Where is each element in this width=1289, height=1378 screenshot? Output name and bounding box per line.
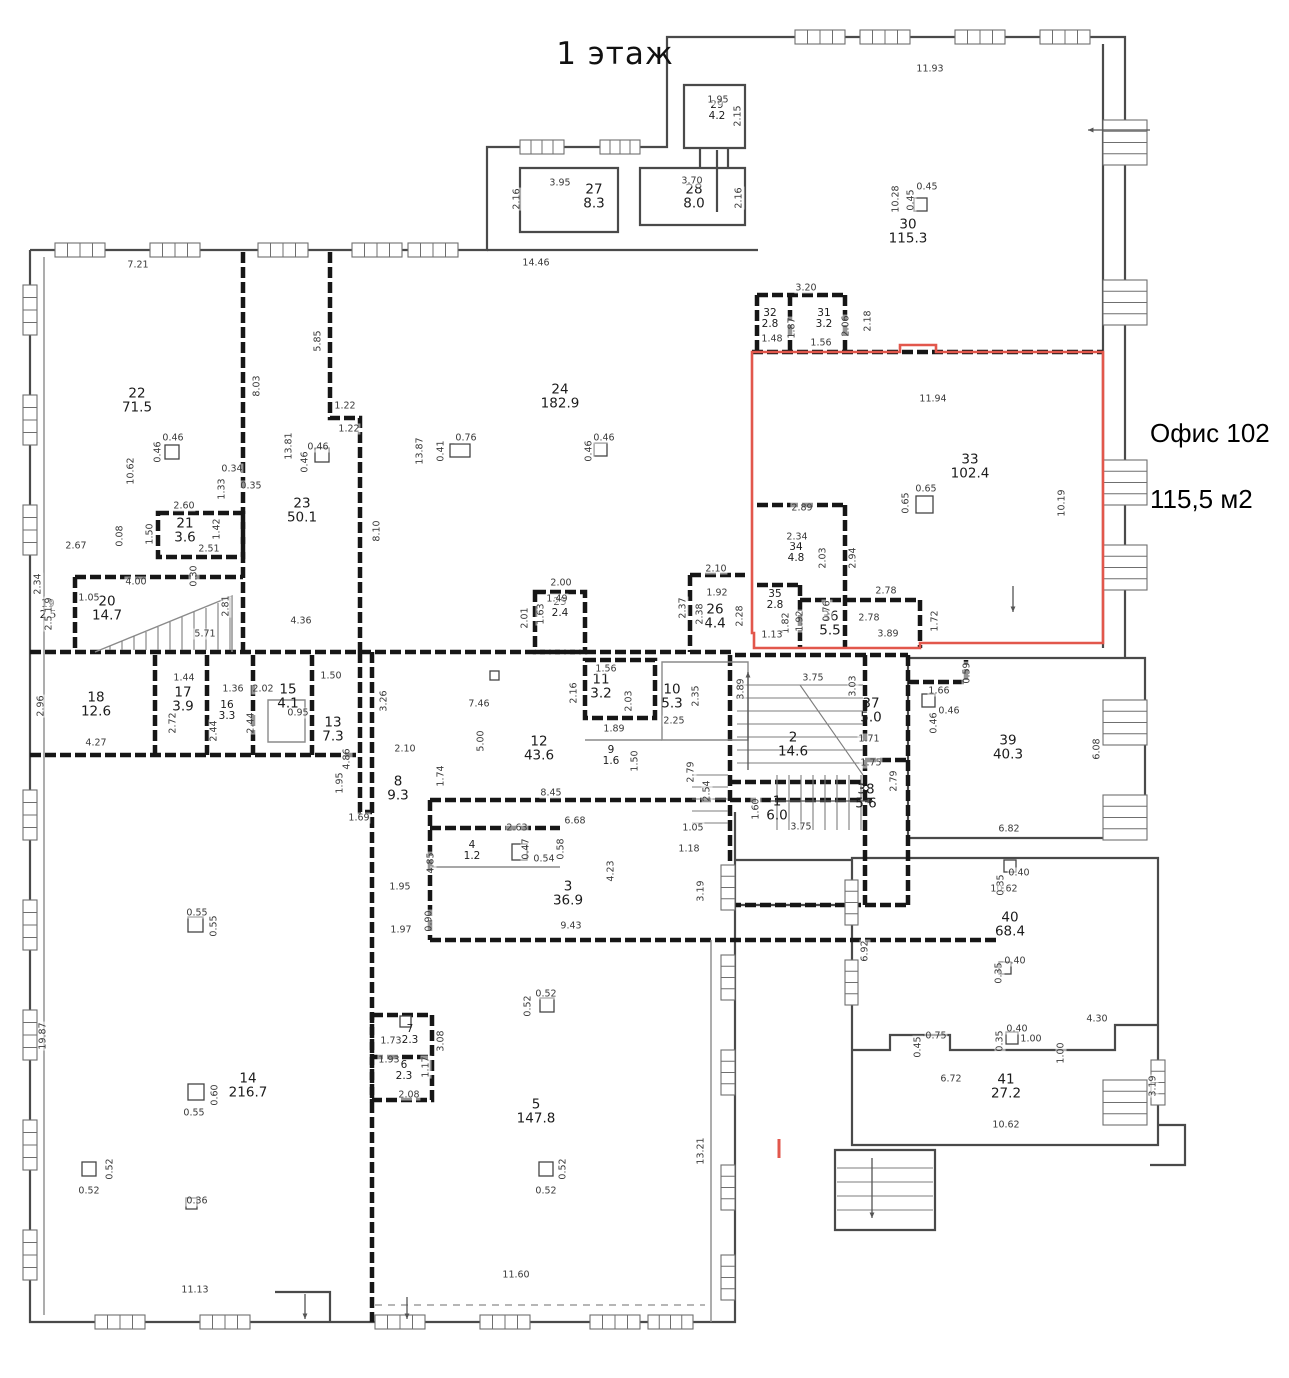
dim-label: 0.45: [906, 188, 917, 211]
room-number: 33: [951, 452, 990, 466]
dim-label: 1.69: [347, 813, 370, 824]
room-label-41: 4127.2: [991, 1072, 1021, 1100]
dim-label: 7.21: [126, 260, 149, 271]
dim-label: 0.75: [924, 1031, 947, 1042]
room-label-12: 1243.6: [524, 734, 554, 762]
dim-label: 0.36: [185, 1196, 208, 1207]
dim-label: 1.66: [927, 686, 950, 697]
dim-label: 2.15: [733, 104, 744, 127]
dim-label: 11.13: [180, 1285, 209, 1296]
room-area: 2.8: [762, 318, 779, 330]
dim-label: 0.65: [914, 484, 937, 495]
column-marker: [450, 444, 470, 457]
dim-label: 0.65: [901, 491, 912, 514]
dim-label: 0.95: [286, 708, 309, 719]
room-area: 71.5: [122, 400, 152, 416]
dim-label: 1.95: [335, 771, 346, 794]
room-area: 4.4: [704, 616, 725, 632]
room-number: 1: [766, 794, 787, 808]
room-area: 4.8: [788, 552, 805, 564]
dim-label: 2.60: [172, 501, 195, 512]
dim-label: 0.47: [521, 837, 532, 860]
dim-label: 2.28: [735, 604, 746, 627]
dim-label: 2.00: [549, 578, 572, 589]
room-label-17: 173.9: [172, 685, 193, 713]
dim-label: 1.89: [602, 724, 625, 735]
room-label-16: 163.3: [219, 700, 236, 722]
dim-label: 2.01: [520, 606, 531, 629]
room-area: 68.4: [995, 924, 1025, 940]
dim-label: 4.23: [606, 859, 617, 882]
dim-label: 0.59: [962, 661, 973, 684]
dim-label: 1.72: [930, 609, 941, 632]
room-label-27: 278.3: [583, 182, 604, 210]
room-label-13: 137.3: [322, 715, 343, 743]
dim-label: 2.03: [818, 546, 829, 569]
office-callout-title: Офис 102: [1150, 420, 1270, 446]
dim-label: 2.67: [64, 541, 87, 552]
dim-label: 2.10: [704, 564, 727, 575]
dim-label: 5.71: [193, 629, 216, 640]
dim-label: 3.89: [736, 677, 747, 700]
dim-label: 11.94: [918, 394, 947, 405]
column-marker: [165, 445, 179, 459]
dim-label: 0.45: [913, 1035, 924, 1058]
room-label-23: 2350.1: [287, 496, 317, 524]
room-area: 14.7: [92, 608, 122, 624]
room-number: 38: [855, 782, 876, 796]
room-label-39: 3940.3: [993, 733, 1023, 761]
dim-label: 1.56: [594, 664, 617, 675]
dim-label: 0.46: [929, 711, 940, 734]
dim-label: 2.44: [209, 719, 220, 742]
dim-label: 1.97: [389, 925, 412, 936]
room-label-14: 14216.7: [229, 1071, 268, 1099]
dim-label: 13.81: [284, 431, 295, 460]
room-number: 14: [229, 1071, 268, 1085]
dim-label: 1.74: [436, 764, 447, 787]
room-number: 40: [995, 910, 1025, 924]
room-area: 3.6: [174, 530, 195, 546]
dim-label: 1.60: [751, 797, 762, 820]
room-label-28: 288.0: [683, 182, 704, 210]
dim-label: 3.20: [794, 283, 817, 294]
dim-label: 1.9: [44, 596, 55, 613]
dim-label: 1.36: [221, 684, 244, 695]
dim-label: 0.52: [77, 1186, 100, 1197]
dim-label: 4.36: [289, 616, 312, 627]
room-number: 26: [704, 602, 725, 616]
dim-label: 6.68: [563, 816, 586, 827]
room-label-7: 72.3: [402, 1024, 419, 1046]
room-number: 41: [991, 1072, 1021, 1086]
dim-label: 0.41: [436, 439, 447, 462]
dim-label: 0.46: [300, 450, 311, 473]
room-label-30: 30115.3: [889, 217, 928, 245]
column-marker: [82, 1162, 96, 1176]
dim-label: 0.40: [1003, 956, 1026, 967]
dim-label: 0.55: [185, 908, 208, 919]
room-number: 15: [277, 682, 298, 696]
room-area: 8.0: [683, 196, 704, 212]
dim-label: 6.92: [860, 939, 871, 962]
dim-label: 0.35: [996, 873, 1007, 896]
dim-label: 0.90: [424, 909, 435, 932]
dim-label: 11.93: [915, 64, 944, 75]
dim-label: 2.63: [505, 823, 528, 834]
column-marker: [490, 671, 499, 680]
dim-label: 0.55: [182, 1108, 205, 1119]
room-area: 216.7: [229, 1085, 268, 1101]
dim-label: 1.00: [1019, 1034, 1042, 1045]
dim-label: 0.35: [994, 961, 1005, 984]
room-label-9: 91.6: [603, 745, 620, 767]
dim-label: 2.79: [686, 760, 697, 783]
room-area: 7.3: [322, 729, 343, 745]
room-area: 3.2: [590, 686, 611, 702]
room-area: 115.3: [889, 231, 928, 247]
dim-label: 2.10: [393, 744, 416, 755]
column-marker: [916, 496, 933, 513]
room-label-15: 154.1: [277, 682, 298, 710]
column-marker: [594, 443, 607, 456]
dim-label: 1.22: [337, 424, 360, 435]
room-label-2: 214.6: [778, 730, 808, 758]
room-area: 40.3: [993, 747, 1023, 763]
dim-label: 0.76: [822, 599, 833, 622]
dim-label: 1.00: [1056, 1041, 1067, 1064]
room-number: 23: [287, 496, 317, 510]
dim-label: 4.30: [1085, 1014, 1108, 1025]
column-marker: [540, 998, 554, 1012]
dim-label: 8.03: [252, 374, 263, 397]
dim-label: 0.30: [189, 564, 200, 587]
dim-label: 0.34: [220, 464, 243, 475]
dim-label: 2.81: [221, 594, 232, 617]
room-area: 36.9: [553, 893, 583, 909]
dim-label: 1.75: [859, 758, 882, 769]
room-area: 14.6: [778, 744, 808, 760]
dim-label: 1.50: [319, 671, 342, 682]
dim-label: 1.13: [760, 630, 783, 641]
dim-label: 7.46: [467, 699, 490, 710]
dim-label: 11.60: [501, 1270, 530, 1281]
office-callout-area: 115,5 м2: [1150, 486, 1270, 512]
dim-label: 5.00: [476, 729, 487, 752]
dim-label: 1.71: [857, 734, 880, 745]
dim-label: 1.49: [545, 594, 568, 605]
dim-label: 0.08: [115, 524, 126, 547]
dim-label: 10.62: [991, 1120, 1020, 1131]
room-label-33: 33102.4: [951, 452, 990, 480]
dim-label: 2.94: [848, 546, 859, 569]
dim-label: 0.54: [532, 854, 555, 865]
dim-label: 1.63: [536, 602, 547, 625]
dim-label: 0.55: [209, 914, 220, 937]
dim-label: 3.08: [436, 1029, 447, 1052]
room-label-37: 375.0: [860, 696, 881, 724]
direction-arrows-layer: [303, 128, 1150, 1319]
dim-label: 10.62: [126, 456, 137, 485]
dim-label: 8.10: [372, 519, 383, 542]
room-number: 18: [81, 690, 111, 704]
dim-label: 2.51: [197, 544, 220, 555]
room-number: 10: [661, 682, 682, 696]
room-label-31: 313.2: [816, 308, 833, 330]
dim-label: 2.37: [678, 596, 689, 619]
room-label-32: 322.8: [762, 308, 779, 330]
dim-label: 2.25: [662, 716, 685, 727]
dim-label: 2.16: [734, 186, 745, 209]
dim-label: 14.46: [521, 258, 550, 269]
dim-label: 2.78: [874, 586, 897, 597]
dim-label: 0.45: [915, 182, 938, 193]
room-area: 2.3: [402, 1034, 419, 1046]
room-label-3: 336.9: [553, 879, 583, 907]
dim-label: 2.18: [863, 309, 874, 332]
dim-label: 13.21: [696, 1136, 707, 1165]
room-label-24: 24182.9: [541, 382, 580, 410]
room-area: 5.5: [819, 623, 840, 639]
room-label-5: 5147.8: [517, 1097, 556, 1125]
dim-label: 10.28: [891, 184, 902, 213]
dim-label: 0.35: [239, 481, 262, 492]
column-marker: [188, 1084, 204, 1100]
room-area: 8.3: [583, 196, 604, 212]
dim-label: 2.34: [785, 532, 808, 543]
room-number: 11: [590, 672, 611, 686]
room-number: 27: [583, 182, 604, 196]
dim-label: 2.38: [695, 602, 706, 625]
dim-label: 1.22: [333, 401, 356, 412]
room-number: 30: [889, 217, 928, 231]
room-label-1: 16.0: [766, 794, 787, 822]
dim-label: 1.50: [145, 522, 156, 545]
dim-label: 0.35: [995, 1029, 1006, 1052]
dim-label: 2.34: [33, 572, 44, 595]
room-number: 17: [172, 685, 193, 699]
dim-label: 1.87: [787, 316, 798, 339]
dim-label: 3.03: [848, 674, 859, 697]
room-number: 39: [993, 733, 1023, 747]
dim-label: 1.05: [681, 823, 704, 834]
room-area: 2.3: [396, 1070, 413, 1082]
dim-label: 3.95: [548, 178, 571, 189]
dim-label: 0.52: [534, 1186, 557, 1197]
dim-label: 2.5: [44, 614, 55, 631]
dim-label: 1.56: [809, 338, 832, 349]
room-area: 2.8: [767, 599, 784, 611]
dim-label: 4.86: [342, 747, 353, 770]
dim-label: 0.52: [558, 1157, 569, 1180]
room-area: 3.2: [816, 318, 833, 330]
dim-label: 1.93: [377, 1055, 400, 1066]
room-area: 5.0: [860, 710, 881, 726]
dim-label: 1.48: [760, 334, 783, 345]
room-area: 27.2: [991, 1086, 1021, 1102]
room-number: 3: [553, 879, 583, 893]
dim-label: 2.16: [512, 187, 523, 210]
room-area: 9.3: [387, 788, 408, 804]
room-area: 6.0: [766, 808, 787, 824]
dim-label: 0.46: [937, 706, 960, 717]
dim-label: 0.40: [1007, 868, 1030, 879]
room-area: 1.2: [464, 850, 481, 862]
dim-label: 2.35: [691, 684, 702, 707]
room-label-35: 352.8: [767, 589, 784, 611]
dim-label: 1.33: [217, 477, 228, 500]
dim-label: 0.46: [592, 433, 615, 444]
dim-label: 3.19: [1148, 1074, 1159, 1097]
dim-label: 0.52: [105, 1157, 116, 1180]
dim-label: 1.44: [172, 673, 195, 684]
dim-label: 6.72: [939, 1074, 962, 1085]
column-marker: [539, 1162, 553, 1176]
room-number: 24: [541, 382, 580, 396]
room-area: 50.1: [287, 510, 317, 526]
dim-label: 1.42: [212, 517, 223, 540]
room-area: 4.2: [709, 110, 726, 122]
room-area: 43.6: [524, 748, 554, 764]
office-callout: Офис 102 115,5 м2: [1150, 420, 1270, 512]
dim-label: 1.92: [795, 609, 806, 632]
room-label-34: 344.8: [788, 542, 805, 564]
dim-label: 4.85: [426, 851, 437, 874]
room-number: 21: [174, 516, 195, 530]
dim-label: 9.43: [559, 921, 582, 932]
room-label-8: 89.3: [387, 774, 408, 802]
dim-label: 6.08: [1092, 737, 1103, 760]
dim-label: 1.05: [77, 593, 100, 604]
room-area: 2.4: [552, 607, 569, 619]
dim-label: 2.54: [702, 779, 713, 802]
room-area: 5.3: [661, 696, 682, 712]
dim-label: 6.82: [997, 824, 1020, 835]
dim-label: 3.26: [379, 689, 390, 712]
dim-label: 4.27: [84, 738, 107, 749]
dim-label: 2.08: [397, 1090, 420, 1101]
dim-label: 0.58: [556, 837, 567, 860]
room-number: 13: [322, 715, 343, 729]
dim-label: 19.87: [38, 1021, 49, 1050]
room-area: 147.8: [517, 1111, 556, 1127]
room-label-4: 41.2: [464, 840, 481, 862]
dim-label: 1.50: [630, 749, 641, 772]
dim-label: 3.70: [680, 176, 703, 187]
dim-label: 1.95: [706, 95, 729, 106]
column-marker: [188, 917, 203, 932]
dim-label: 2.44: [246, 711, 257, 734]
room-number: 5: [517, 1097, 556, 1111]
dim-label: 1.18: [677, 844, 700, 855]
dim-label: 10.19: [1057, 488, 1068, 517]
room-area: 3.3: [219, 710, 236, 722]
dim-label: 5.85: [313, 329, 324, 352]
dim-label: 0.52: [534, 989, 557, 1000]
dim-label: 0.46: [153, 440, 164, 463]
room-label-26: 264.4: [704, 602, 725, 630]
dim-label: 13.87: [415, 436, 426, 465]
dim-label: 2.03: [624, 689, 635, 712]
dim-label: 0.46: [161, 433, 184, 444]
room-label-22: 2271.5: [122, 386, 152, 414]
dim-label: 1.95: [388, 882, 411, 893]
dim-label: 2.72: [168, 711, 179, 734]
room-number: 2: [778, 730, 808, 744]
dim-label: 1.17: [421, 1055, 432, 1078]
dim-label: 1.92: [705, 588, 728, 599]
dim-label: 0.46: [584, 439, 595, 462]
room-number: 12: [524, 734, 554, 748]
dim-label: 2.89: [790, 503, 813, 514]
room-label-18: 1812.6: [81, 690, 111, 718]
room-area: 12.6: [81, 704, 111, 720]
dim-label: 2.96: [36, 694, 47, 717]
dim-label: 8.45: [539, 788, 562, 799]
room-area: 5.6: [855, 796, 876, 812]
dim-label: 0.60: [210, 1083, 221, 1106]
room-label-38: 385.6: [855, 782, 876, 810]
dim-label: 2.02: [251, 684, 274, 695]
dim-label: 2.06: [841, 314, 852, 337]
floor-plan-page: 1 этаж Офис 102 115,5 м2 16.0214.6336.94…: [0, 0, 1289, 1378]
dim-label: 0.52: [523, 994, 534, 1017]
room-area: 182.9: [541, 396, 580, 412]
room-area: 1.6: [603, 755, 620, 767]
dim-label: 3.75: [789, 822, 812, 833]
room-number: 22: [122, 386, 152, 400]
dim-label: 3.89: [876, 629, 899, 640]
floor-title: 1 этаж: [505, 36, 725, 72]
room-label-11: 113.2: [590, 672, 611, 700]
dim-label: 2.16: [569, 681, 580, 704]
dim-label: 4.00: [124, 577, 147, 588]
dim-label: 0.76: [454, 433, 477, 444]
dim-label: 3.19: [696, 879, 707, 902]
room-number: 8: [387, 774, 408, 788]
room-number: 37: [860, 696, 881, 710]
room-label-10: 105.3: [661, 682, 682, 710]
room-label-40: 4068.4: [995, 910, 1025, 938]
room-label-21: 213.6: [174, 516, 195, 544]
dim-label: 2.78: [857, 613, 880, 624]
dim-label: 3.75: [801, 673, 824, 684]
room-area: 102.4: [951, 466, 990, 482]
dim-label: 1.73: [379, 1036, 402, 1047]
dim-label: 2.79: [889, 769, 900, 792]
